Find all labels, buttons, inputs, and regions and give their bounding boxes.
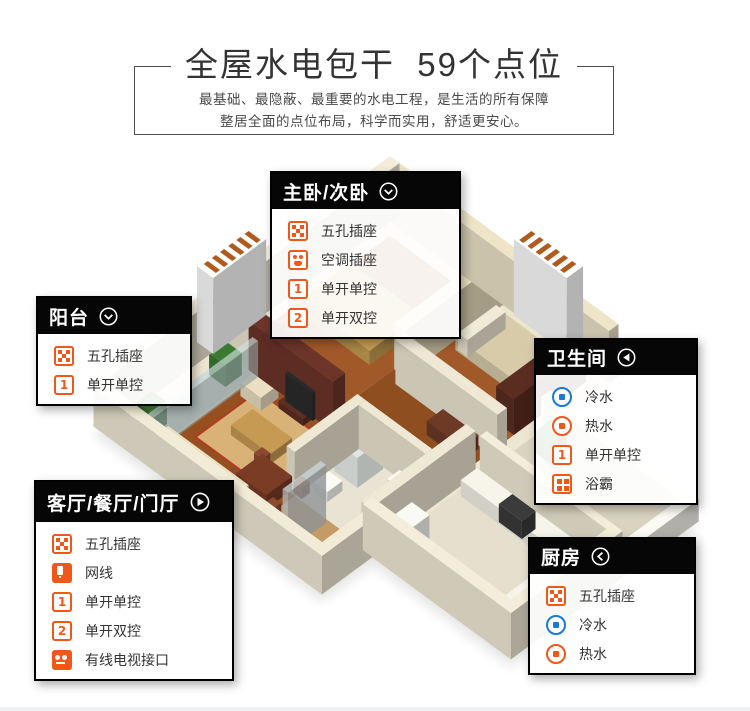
switch-single-1-icon: 1 xyxy=(54,375,74,395)
five-hole-socket-icon xyxy=(52,534,72,554)
callout-master-second-bedroom: 主卧/次卧 五孔插座 空调插座 1 单开单控 2 单开双控 xyxy=(270,171,461,339)
cold-water-icon xyxy=(552,387,572,407)
arrow-right-circle-icon xyxy=(189,491,211,513)
cold-water-icon xyxy=(546,615,566,635)
point-item: 1 单开单控 xyxy=(36,587,232,616)
point-item: 热水 xyxy=(530,639,694,668)
point-item: 冷水 xyxy=(530,610,694,639)
point-item: 五孔插座 xyxy=(38,341,190,370)
callout-items: 五孔插座 空调插座 1 单开单控 2 单开双控 xyxy=(272,209,459,337)
point-item: 热水 xyxy=(536,411,696,440)
callout-items: 五孔插座 1 单开单控 xyxy=(38,334,190,404)
arrow-left-circle-icon xyxy=(616,347,637,368)
switch-single-1-icon: 1 xyxy=(552,445,572,465)
callout-title: 客厅/餐厅/门厅 xyxy=(47,489,180,516)
switch-single-2-icon: 2 xyxy=(52,621,72,641)
callout-bathroom: 卫生间 冷水 热水 1 单开单控 浴霸 xyxy=(534,338,698,505)
point-item: 网线 xyxy=(36,558,232,587)
switch-single-1-icon: 1 xyxy=(288,279,308,299)
header-subtitle-2: 整居全面的点位布局，科学而实用，舒适更安心。 xyxy=(135,110,613,130)
header-frame: 全屋水电包干 59个点位 最基础、最隐蔽、最重要的水电工程，是生活的所有保障 整… xyxy=(134,66,614,135)
ac-socket-icon xyxy=(288,250,308,270)
point-item: 1 单开单控 xyxy=(272,274,459,303)
callout-kitchen: 厨房 五孔插座 冷水 热水 xyxy=(528,537,696,675)
callout-header: 厨房 xyxy=(530,539,694,574)
point-item: 五孔插座 xyxy=(36,529,232,558)
hot-water-icon xyxy=(552,416,572,436)
switch-single-1-icon: 1 xyxy=(52,592,72,612)
hot-water-icon xyxy=(546,644,566,664)
callout-header: 阳台 xyxy=(38,298,190,334)
header-subtitle-1: 最基础、最隐蔽、最重要的水电工程，是生活的所有保障 xyxy=(135,88,613,108)
callout-items: 冷水 热水 1 单开单控 浴霸 xyxy=(536,375,696,503)
point-item: 五孔插座 xyxy=(272,216,459,245)
point-item: 浴霸 xyxy=(536,469,696,498)
network-port-icon xyxy=(52,563,72,583)
switch-single-2-icon: 2 xyxy=(288,308,308,328)
callout-header: 客厅/餐厅/门厅 xyxy=(36,482,232,522)
point-item: 有线电视接口 xyxy=(36,645,232,674)
chevron-down-circle-icon xyxy=(378,181,399,202)
five-hole-socket-icon xyxy=(546,586,566,606)
bath-heater-icon xyxy=(552,474,572,494)
callout-header: 卫生间 xyxy=(536,340,696,375)
chevron-left-circle-icon xyxy=(590,546,611,567)
callout-balcony: 阳台 五孔插座 1 单开单控 xyxy=(36,296,192,406)
five-hole-socket-icon xyxy=(54,346,74,366)
callout-title: 主卧/次卧 xyxy=(283,178,369,205)
point-item: 五孔插座 xyxy=(530,581,694,610)
callout-living-dining-entry: 客厅/餐厅/门厅 五孔插座 网线 1 单开单控 2 单开双控 xyxy=(34,480,234,681)
tv-port-icon xyxy=(52,650,72,670)
callout-header: 主卧/次卧 xyxy=(272,173,459,209)
callout-items: 五孔插座 冷水 热水 xyxy=(530,574,694,673)
callout-items: 五孔插座 网线 1 单开单控 2 单开双控 有线电视接口 xyxy=(36,522,232,679)
promo-page: 全屋水电包干 59个点位 最基础、最隐蔽、最重要的水电工程，是生活的所有保障 整… xyxy=(0,0,750,711)
page-title: 全屋水电包干 59个点位 xyxy=(135,38,613,86)
section-divider xyxy=(0,707,750,711)
callout-title: 阳台 xyxy=(49,303,89,330)
chevron-down-circle-icon xyxy=(98,306,119,327)
point-item: 2 单开双控 xyxy=(272,303,459,332)
point-item: 1 单开单控 xyxy=(38,370,190,399)
point-item: 冷水 xyxy=(536,382,696,411)
point-item: 空调插座 xyxy=(272,245,459,274)
callout-title: 卫生间 xyxy=(547,344,607,371)
point-item: 2 单开双控 xyxy=(36,616,232,645)
point-item: 1 单开单控 xyxy=(536,440,696,469)
callout-title: 厨房 xyxy=(541,543,581,570)
five-hole-socket-icon xyxy=(288,221,308,241)
